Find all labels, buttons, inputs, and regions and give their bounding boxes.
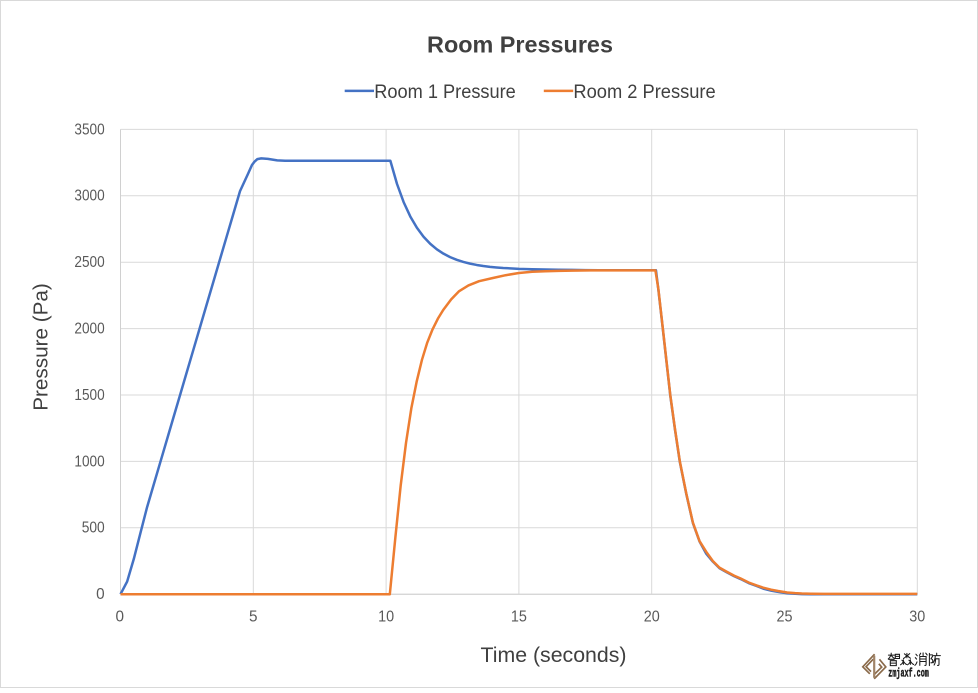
svg-text:Pressure (Pa): Pressure (Pa) <box>29 283 52 411</box>
svg-text:20: 20 <box>644 609 660 626</box>
svg-text:25: 25 <box>777 609 793 626</box>
svg-text:5: 5 <box>249 609 258 626</box>
svg-text:2000: 2000 <box>74 321 104 338</box>
svg-text:10: 10 <box>378 609 394 626</box>
svg-text:1500: 1500 <box>74 387 104 404</box>
svg-text:3500: 3500 <box>74 121 104 138</box>
svg-text:0: 0 <box>96 586 105 603</box>
svg-text:zmjaxf.com: zmjaxf.com <box>888 666 929 680</box>
svg-text:500: 500 <box>82 520 105 537</box>
svg-text:2500: 2500 <box>74 254 104 271</box>
svg-text:Room 1 Pressure: Room 1 Pressure <box>374 81 516 103</box>
svg-text:15: 15 <box>511 609 527 626</box>
svg-text:1000: 1000 <box>74 453 104 470</box>
svg-text:Room Pressures: Room Pressures <box>427 32 613 58</box>
svg-text:30: 30 <box>909 609 925 626</box>
svg-text:3000: 3000 <box>74 188 104 205</box>
svg-text:Room 2 Pressure: Room 2 Pressure <box>573 81 715 103</box>
svg-text:Time (seconds): Time (seconds) <box>481 643 627 667</box>
svg-text:0: 0 <box>116 609 125 626</box>
